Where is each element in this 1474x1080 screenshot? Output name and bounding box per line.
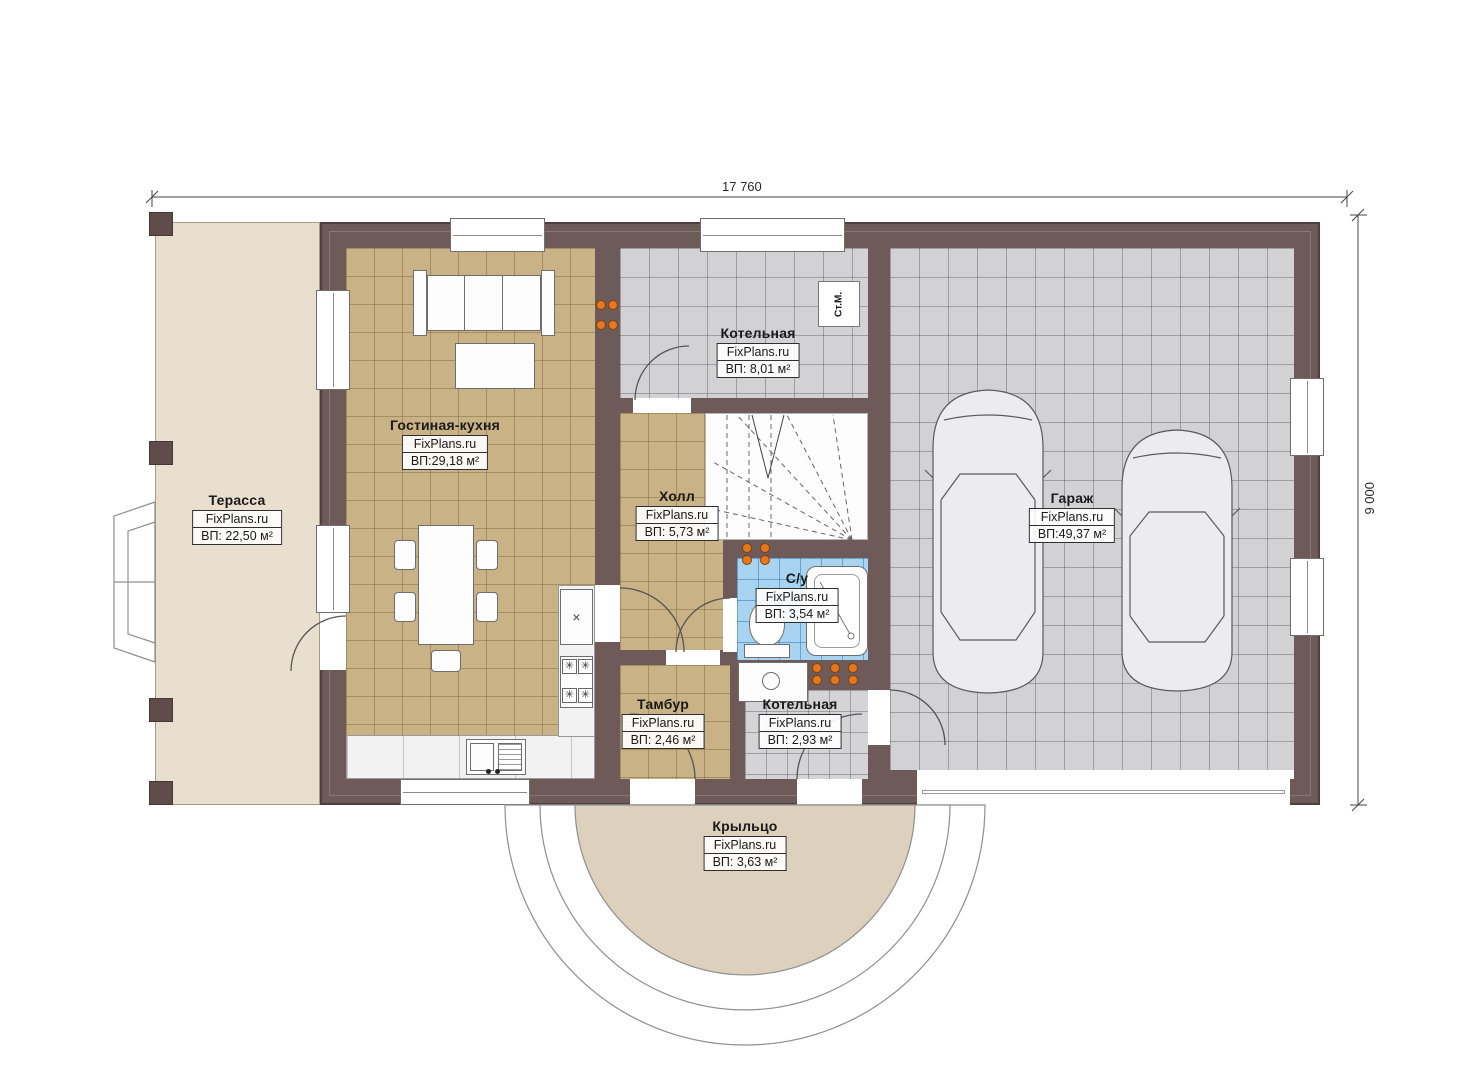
chair — [476, 540, 498, 570]
room-info-box: FixPlans.ru ВП: 5,73 м² — [636, 506, 719, 541]
room-label-terrace: Терасса FixPlans.ru ВП: 22,50 м² — [192, 492, 282, 545]
room-name: Тамбур — [622, 696, 705, 712]
room-brand: FixPlans.ru — [193, 511, 281, 528]
chair — [476, 592, 498, 622]
window — [700, 218, 845, 252]
stove-burner: ✳ — [578, 688, 593, 703]
garage-apron — [917, 770, 1294, 779]
stove-burner: ✳ — [562, 659, 577, 674]
room-name: Терасса — [192, 492, 282, 508]
room-brand: FixPlans.ru — [637, 507, 718, 524]
door-opening — [633, 398, 691, 413]
room-area: ВП:29,18 м² — [403, 453, 487, 469]
room-brand: FixPlans.ru — [705, 837, 786, 854]
chair — [431, 650, 461, 672]
chair — [394, 592, 416, 622]
room-area: ВП: 2,93 м² — [760, 732, 841, 748]
room-info-box: FixPlans.ru ВП: 2,46 м² — [622, 714, 705, 749]
room-info-box: FixPlans.ru ВП:29,18 м² — [402, 435, 488, 470]
radiator — [830, 663, 840, 685]
dimension-height-label: 9 000 — [1362, 482, 1377, 515]
sofa-armrest — [541, 270, 555, 336]
room-name: Гараж — [1029, 490, 1115, 506]
room-area: ВП: 22,50 м² — [193, 528, 281, 544]
room-area: ВП: 3,54 м² — [757, 606, 838, 622]
window — [1290, 378, 1324, 456]
stove-burner: ✳ — [562, 688, 577, 703]
sink-basin — [470, 743, 494, 771]
terrace-steps — [114, 502, 155, 662]
entrance-door-opening — [797, 779, 862, 805]
room-info-box: FixPlans.ru ВП: 22,50 м² — [192, 510, 282, 545]
faucet-dot — [495, 769, 500, 774]
sofa-cushion-line — [502, 276, 503, 330]
radiator — [848, 663, 858, 685]
room-area: ВП: 2,46 м² — [623, 732, 704, 748]
stm-text: Ст.М. — [834, 291, 845, 316]
room-label-garage: Гараж FixPlans.ru ВП:49,37 м² — [1029, 490, 1115, 543]
dining-table — [418, 525, 474, 645]
window — [400, 779, 530, 805]
room-name: Гостиная-кухня — [390, 417, 500, 433]
room-label-boiler-bottom: Котельная FixPlans.ru ВП: 2,93 м² — [759, 696, 842, 749]
door-opening — [666, 650, 720, 665]
door-opening — [595, 585, 620, 642]
room-area: ВП: 8,01 м² — [718, 361, 799, 377]
room-label-living-kitchen: Гостиная-кухня FixPlans.ru ВП:29,18 м² — [390, 417, 500, 470]
room-name: Крыльцо — [704, 818, 787, 834]
room-brand: FixPlans.ru — [718, 344, 799, 361]
chair — [394, 540, 416, 570]
stm-riser-label: Ст.М. — [818, 281, 860, 327]
room-info-box: FixPlans.ru ВП: 3,54 м² — [756, 588, 839, 623]
room-area: ВП: 3,63 м² — [705, 854, 786, 870]
terrace-post — [149, 698, 173, 722]
radiator — [812, 663, 822, 685]
radiator — [596, 320, 618, 330]
sofa-armrest — [413, 270, 427, 336]
garage-gate-panel — [922, 790, 1285, 794]
radiator — [760, 543, 770, 565]
room-info-box: FixPlans.ru ВП: 3,63 м² — [704, 836, 787, 871]
room-brand: FixPlans.ru — [760, 715, 841, 732]
faucet-dot — [486, 769, 491, 774]
kitchen-sink-small: × — [560, 589, 593, 645]
room-label-boiler-top: Котельная FixPlans.ru ВП: 8,01 м² — [717, 325, 800, 378]
window — [316, 525, 350, 613]
floor-plan-canvas: × ✳ ✳ ✳ ✳ — [0, 0, 1474, 1080]
radiator — [596, 300, 618, 310]
washbasin-bowl — [762, 672, 780, 690]
door-opening — [723, 598, 737, 652]
stairs-area — [705, 413, 868, 540]
window — [450, 218, 545, 252]
room-name: Котельная — [717, 325, 800, 341]
room-area: ВП: 5,73 м² — [637, 524, 718, 540]
room-label-bathroom: С/у FixPlans.ru ВП: 3,54 м² — [756, 570, 839, 623]
terrace-post — [149, 781, 173, 805]
window — [316, 290, 350, 390]
terrace-post — [149, 212, 173, 236]
room-area: ВП:49,37 м² — [1030, 526, 1114, 542]
window — [1290, 558, 1324, 636]
coffee-table — [455, 343, 535, 389]
sink-drainer — [498, 743, 522, 771]
entrance-door-opening — [630, 779, 695, 805]
sofa-cushion-line — [464, 276, 465, 330]
toilet-tank — [744, 644, 790, 658]
room-name: С/у — [756, 570, 839, 586]
dimension-width-label: 17 760 — [722, 179, 762, 194]
room-brand: FixPlans.ru — [757, 589, 838, 606]
terrace-door-opening — [320, 613, 346, 670]
room-label-hall: Холл FixPlans.ru ВП: 5,73 м² — [636, 488, 719, 541]
room-label-tambour: Тамбур FixPlans.ru ВП: 2,46 м² — [622, 696, 705, 749]
room-brand: FixPlans.ru — [1030, 509, 1114, 526]
room-info-box: FixPlans.ru ВП: 2,93 м² — [759, 714, 842, 749]
room-info-box: FixPlans.ru ВП: 8,01 м² — [717, 343, 800, 378]
room-brand: FixPlans.ru — [623, 715, 704, 732]
door-opening — [868, 690, 890, 745]
room-info-box: FixPlans.ru ВП:49,37 м² — [1029, 508, 1115, 543]
room-brand: FixPlans.ru — [403, 436, 487, 453]
room-label-porch: Крыльцо FixPlans.ru ВП: 3,63 м² — [704, 818, 787, 871]
room-name: Котельная — [759, 696, 842, 712]
terrace-post — [149, 441, 173, 465]
sofa — [427, 275, 541, 331]
room-name: Холл — [636, 488, 719, 504]
radiator — [742, 543, 752, 565]
stove-burner: ✳ — [578, 659, 593, 674]
